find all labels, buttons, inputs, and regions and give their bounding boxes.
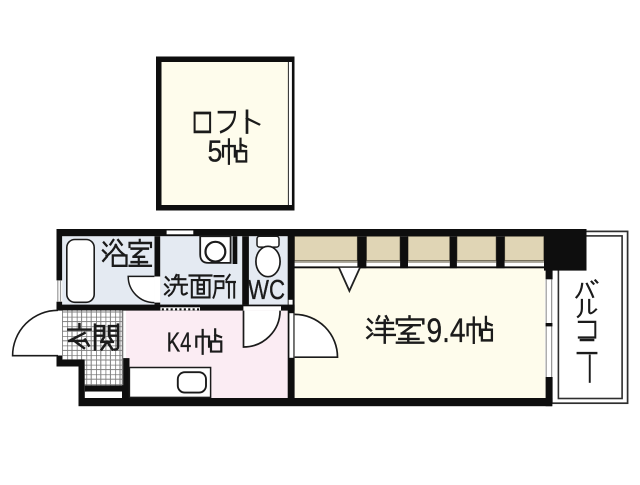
svg-text:K4: K4 [167, 326, 192, 357]
svg-text:WC: WC [248, 274, 285, 305]
svg-text:9.4: 9.4 [427, 312, 466, 350]
svg-text:5: 5 [208, 135, 223, 169]
